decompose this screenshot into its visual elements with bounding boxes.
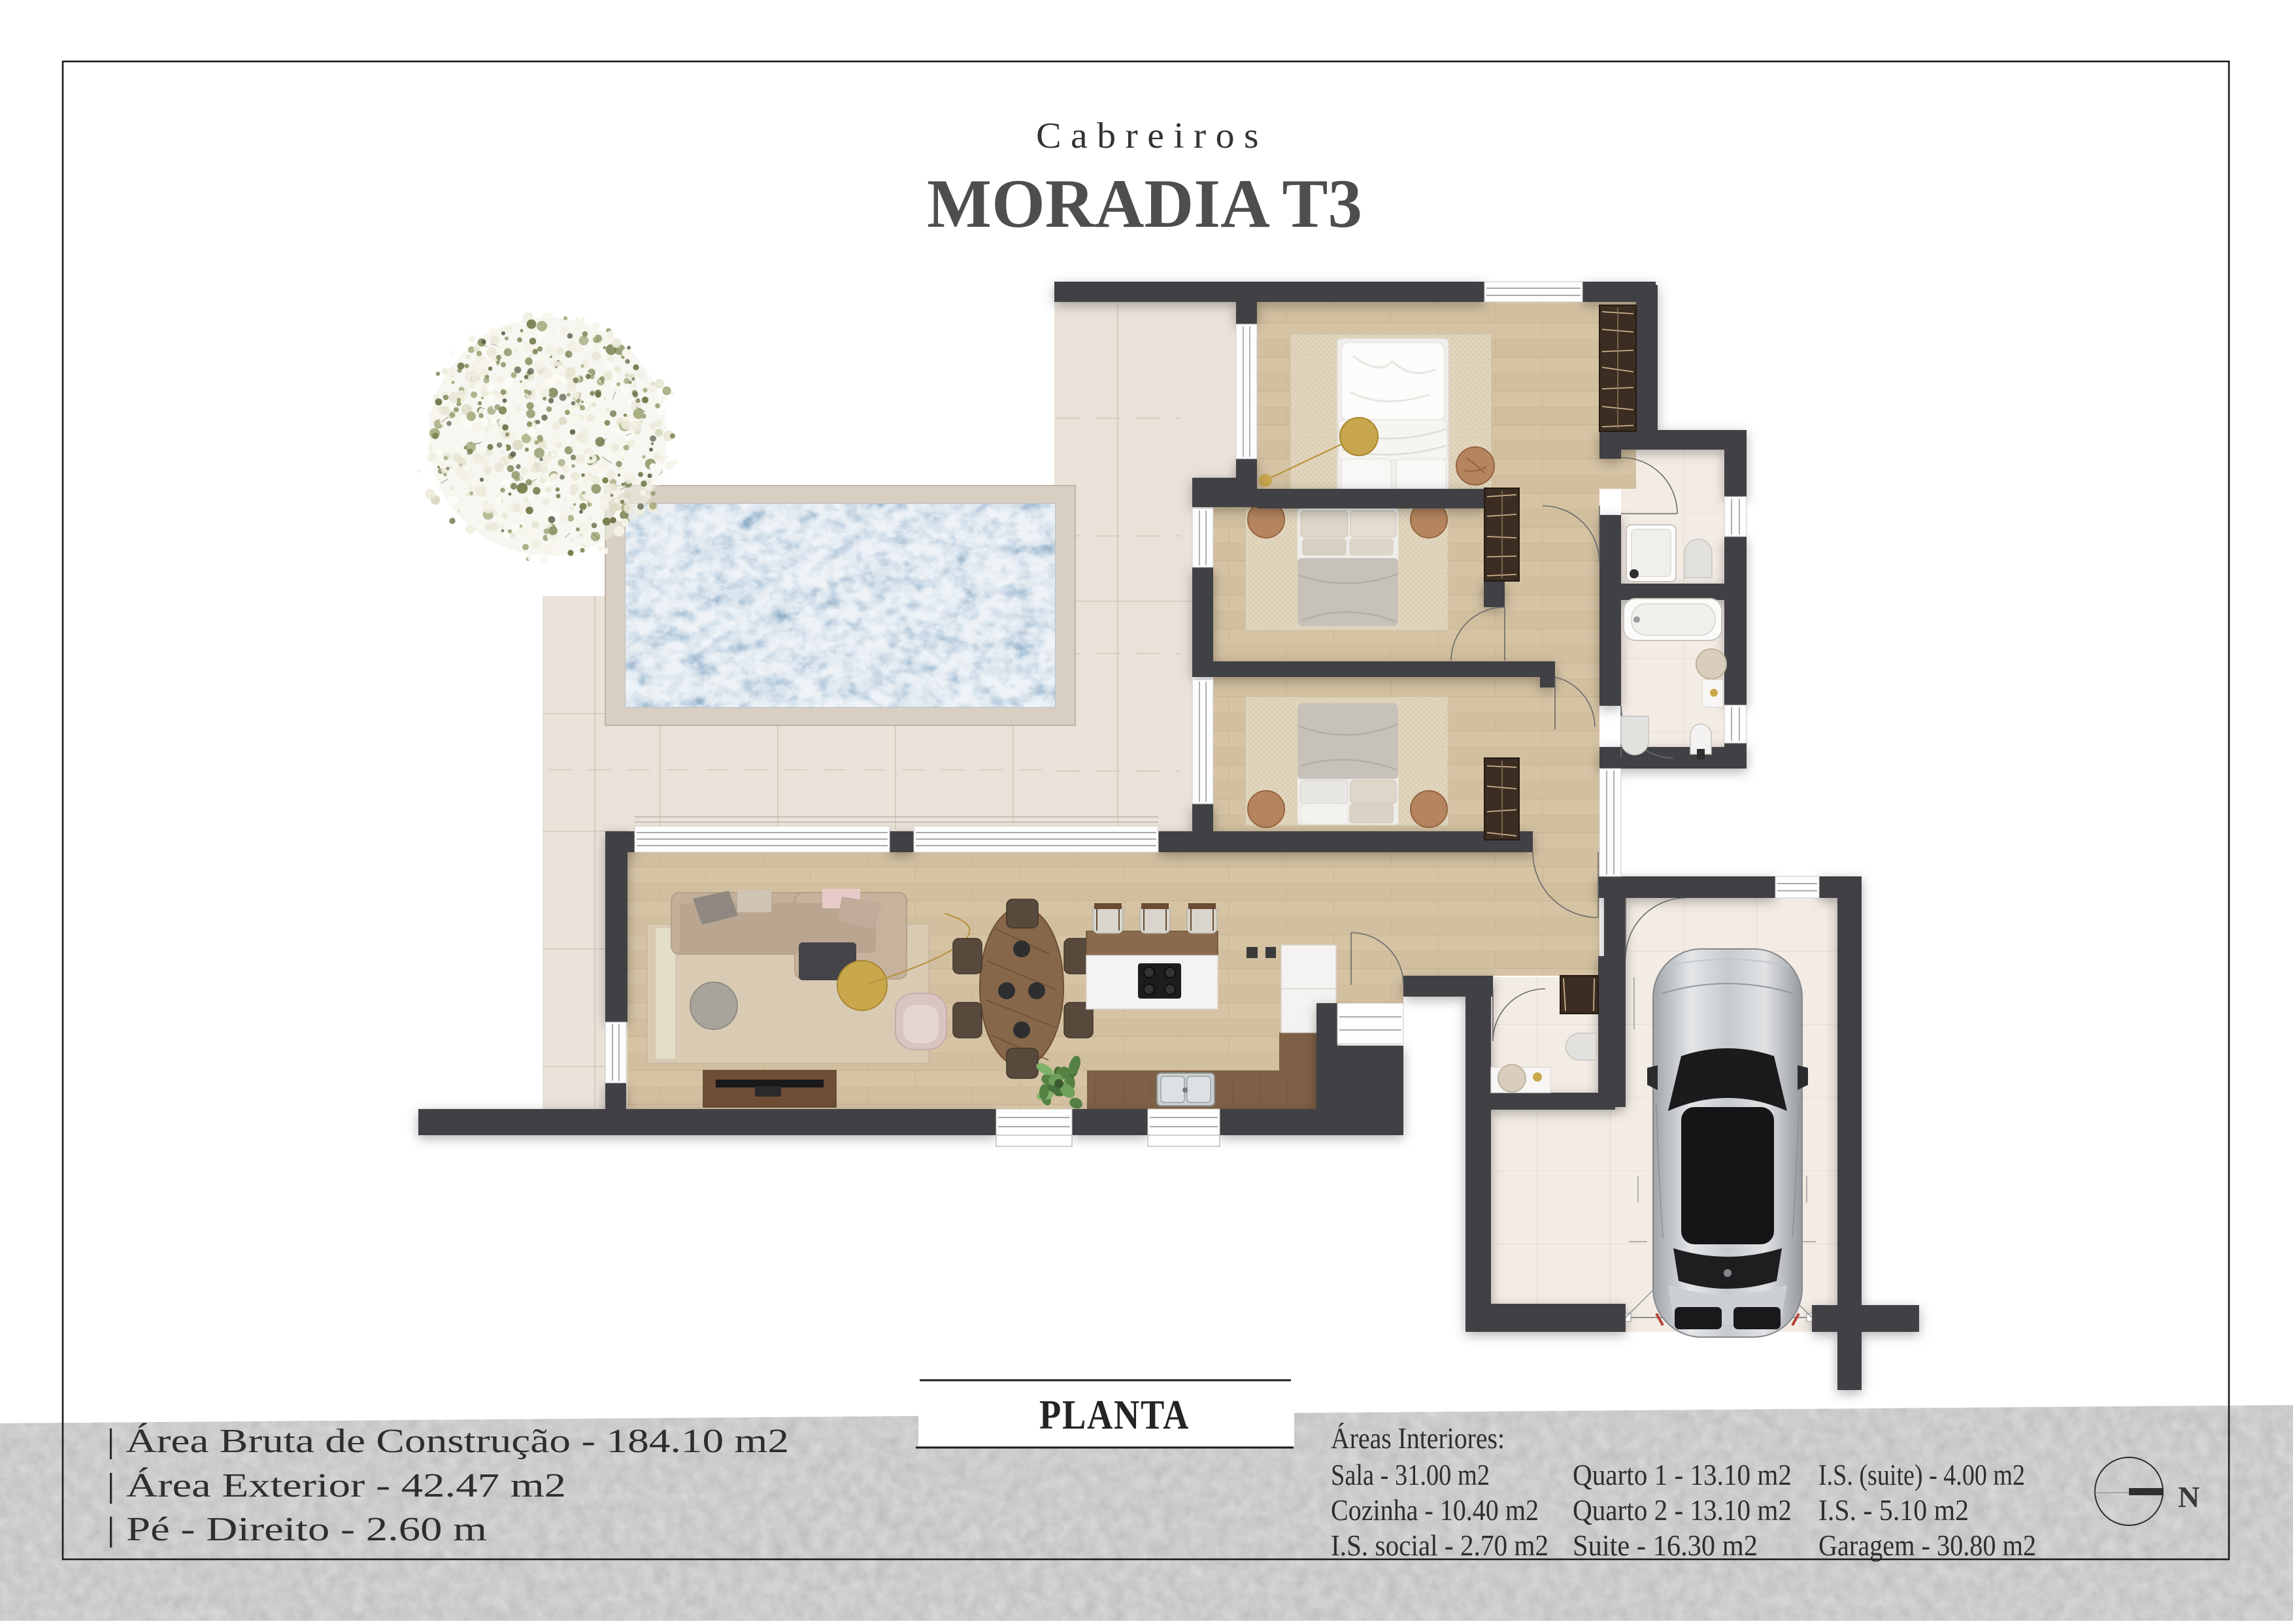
svg-text:PLANTA: PLANTA [1039,1391,1190,1438]
svg-text:Sala - 31.00 m2: Sala - 31.00 m2 [1331,1458,1490,1491]
svg-text:| Área Exterior - 42.47 m2: | Área Exterior - 42.47 m2 [107,1467,566,1504]
svg-text:I.S. (suite) - 4.00 m2: I.S. (suite) - 4.00 m2 [1818,1458,2025,1491]
svg-text:Garagem - 30.80 m2: Garagem - 30.80 m2 [1818,1529,2036,1562]
svg-text:Quarto 2 - 13.10 m2: Quarto 2 - 13.10 m2 [1573,1493,1792,1527]
svg-text:Cozinha - 10.40 m2: Cozinha - 10.40 m2 [1331,1493,1539,1527]
svg-text:Áreas Interiores:: Áreas Interiores: [1331,1421,1505,1455]
svg-text:Suite - 16.30 m2: Suite - 16.30 m2 [1573,1529,1758,1562]
svg-text:Cabreiros: Cabreiros [1036,116,1268,156]
svg-text:Quarto 1 - 13.10 m2: Quarto 1 - 13.10 m2 [1573,1458,1792,1491]
svg-text:I.S. social - 2.70 m2: I.S. social - 2.70 m2 [1331,1529,1548,1562]
svg-text:MORADIA T3: MORADIA T3 [927,165,1362,242]
svg-text:I.S. - 5.10 m2: I.S. - 5.10 m2 [1818,1493,1969,1527]
svg-text:N: N [2178,1480,2200,1514]
svg-text:| Pé - Direito - 2.60 m: | Pé - Direito - 2.60 m [107,1511,487,1548]
svg-text:| Área Bruta de Construção - 1: | Área Bruta de Construção - 184.10 m2 [107,1422,789,1460]
